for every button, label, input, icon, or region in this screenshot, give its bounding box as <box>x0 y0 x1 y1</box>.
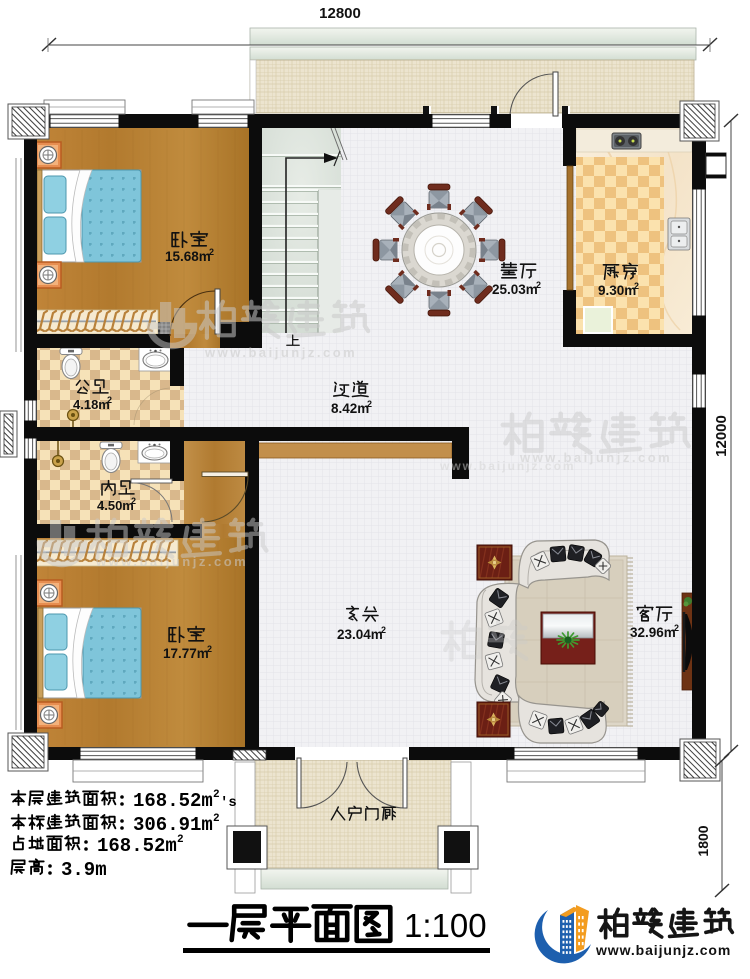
svg-text:15.68m: 15.68m <box>165 249 211 264</box>
svg-text:12000: 12000 <box>713 415 730 457</box>
svg-text:2: 2 <box>209 247 214 257</box>
svg-text:2: 2 <box>213 789 220 801</box>
svg-text:12800: 12800 <box>319 5 361 22</box>
svg-text:8.42m: 8.42m <box>331 401 369 416</box>
svg-text:9.30m: 9.30m <box>598 283 636 298</box>
svg-text:www.baijunjz.com: www.baijunjz.com <box>439 459 576 473</box>
svg-text:www.baijunjz.com: www.baijunjz.com <box>595 942 731 958</box>
svg-text:2: 2 <box>381 625 386 635</box>
svg-text:17.77m: 17.77m <box>163 646 209 661</box>
svg-text:2: 2 <box>213 813 220 825</box>
svg-text:25.03m: 25.03m <box>492 282 538 297</box>
svg-text:168.52m: 168.52m <box>133 790 213 812</box>
svg-text:www.baijunjz.com: www.baijunjz.com <box>204 345 357 360</box>
svg-text:1:100: 1:100 <box>404 907 487 944</box>
svg-text:32.96m: 32.96m <box>630 625 676 640</box>
svg-text:2: 2 <box>207 644 212 654</box>
svg-text:2: 2 <box>131 496 136 506</box>
svg-text:4.18m: 4.18m <box>73 397 110 412</box>
svg-text:2: 2 <box>107 395 112 405</box>
svg-text:2: 2 <box>674 623 679 633</box>
svg-text:www.baijunjz.com: www.baijunjz.com <box>95 554 248 569</box>
svg-text:2: 2 <box>536 280 541 290</box>
svg-text:306.91m: 306.91m <box>133 814 213 836</box>
svg-text:1800: 1800 <box>695 825 711 856</box>
svg-text:4.50m: 4.50m <box>97 498 134 513</box>
svg-text:2: 2 <box>177 834 184 846</box>
svg-text:23.04m: 23.04m <box>337 627 383 642</box>
svg-text:3.9m: 3.9m <box>61 859 107 881</box>
svg-text:2: 2 <box>367 399 372 409</box>
svg-text:'s: 's <box>220 795 237 811</box>
svg-text:2: 2 <box>634 281 639 291</box>
svg-text:168.52m: 168.52m <box>97 835 177 857</box>
